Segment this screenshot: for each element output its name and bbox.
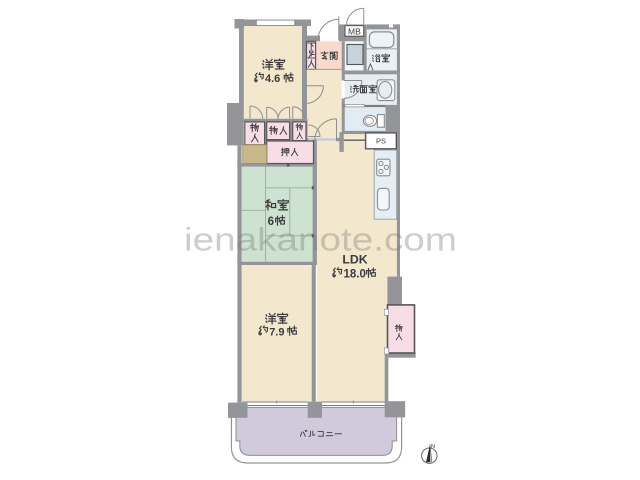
svg-text:7.9: 7.9 [269,326,284,338]
svg-text:N: N [431,444,435,450]
svg-text:MB: MB [348,26,361,36]
svg-text:ienakanote.com: ienakanote.com [184,222,457,258]
svg-text:4.6: 4.6 [265,73,280,85]
svg-text:PS: PS [376,137,386,146]
svg-text:18.0: 18.0 [344,268,366,280]
